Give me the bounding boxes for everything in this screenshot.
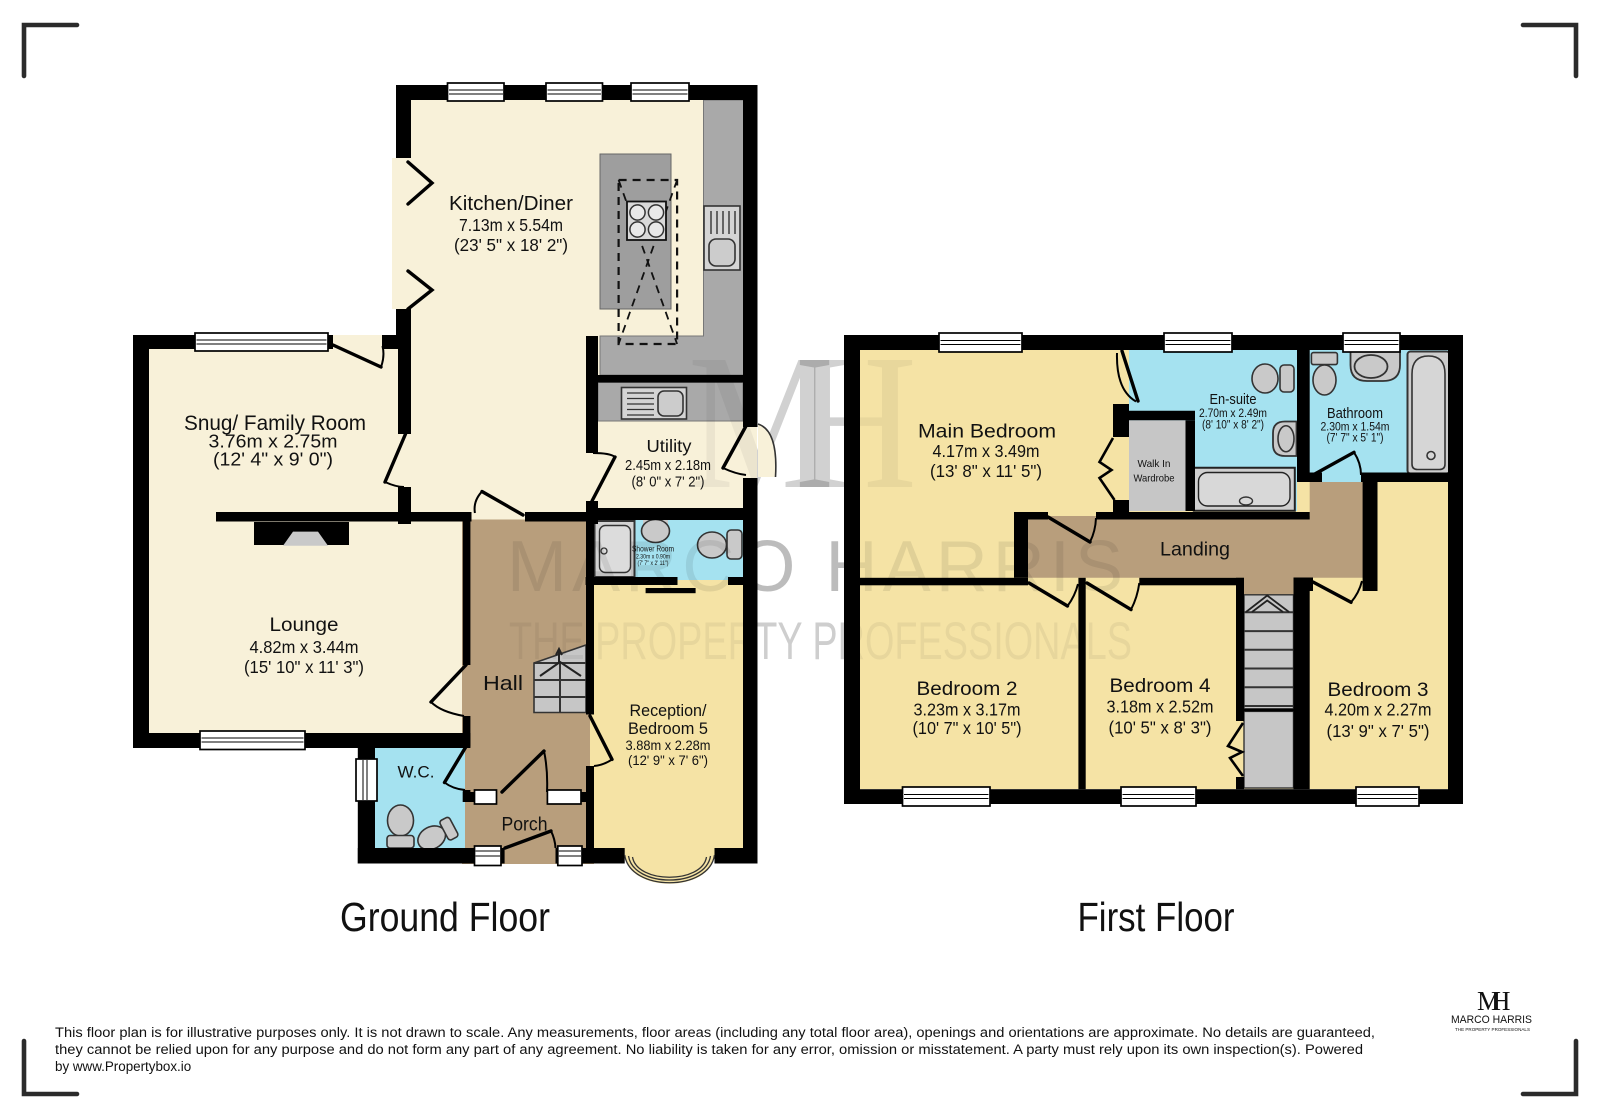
svg-text:4.17m x 3.49m: 4.17m x 3.49m [933, 441, 1040, 461]
svg-text:Wardrobe: Wardrobe [1134, 473, 1175, 485]
svg-text:(7' 7" x 2' 11"): (7' 7" x 2' 11") [638, 561, 669, 567]
svg-text:H: H [1491, 986, 1511, 1016]
svg-text:(8' 10" x 8' 2"): (8' 10" x 8' 2") [1202, 420, 1264, 432]
svg-text:3.76m x 2.75m: 3.76m x 2.75m [209, 432, 338, 452]
svg-text:4.82m x 3.44m: 4.82m x 3.44m [250, 637, 359, 657]
svg-text:This floor plan is for illustr: This floor plan is for illustrative purp… [55, 1025, 1375, 1040]
svg-text:THE PROPERTY PROFESSIONALS: THE PROPERTY PROFESSIONALS [509, 612, 1132, 671]
svg-text:(8' 0" x 7' 2"): (8' 0" x 7' 2") [632, 475, 705, 491]
svg-text:(12' 4" x 9' 0"): (12' 4" x 9' 0") [213, 450, 333, 470]
svg-text:Utility: Utility [647, 436, 692, 456]
svg-text:Bedroom 2: Bedroom 2 [917, 678, 1018, 700]
svg-text:3.23m x 3.17m: 3.23m x 3.17m [914, 700, 1021, 720]
svg-text:Ground Floor: Ground Floor [340, 894, 550, 940]
svg-text:(10' 5" x 8' 3"): (10' 5" x 8' 3") [1109, 718, 1212, 738]
svg-text:(12' 9" x 7' 6"): (12' 9" x 7' 6") [628, 752, 708, 768]
svg-text:MARCO HARRIS: MARCO HARRIS [1451, 1014, 1532, 1026]
svg-text:(15' 10" x 11' 3"): (15' 10" x 11' 3") [244, 657, 364, 677]
svg-text:W.C.: W.C. [398, 764, 435, 782]
svg-text:by www.Propertybox.io: by www.Propertybox.io [55, 1059, 191, 1074]
svg-text:3.18m x 2.52m: 3.18m x 2.52m [1107, 697, 1214, 717]
svg-text:2.70m x 2.49m: 2.70m x 2.49m [1199, 408, 1267, 420]
svg-text:(13' 8" x 11' 5"): (13' 8" x 11' 5") [930, 461, 1042, 481]
svg-text:4.20m x 2.27m: 4.20m x 2.27m [1325, 700, 1432, 720]
svg-text:En-suite: En-suite [1210, 392, 1257, 408]
svg-text:First Floor: First Floor [1078, 894, 1235, 940]
svg-text:(10' 7" x 10' 5"): (10' 7" x 10' 5") [913, 718, 1022, 738]
svg-text:Hall: Hall [483, 673, 523, 695]
svg-text:Landing: Landing [1160, 539, 1230, 561]
svg-text:Lounge: Lounge [270, 614, 339, 636]
svg-text:(13' 9" x 7' 5"): (13' 9" x 7' 5") [1327, 721, 1430, 741]
svg-text:(23' 5" x 18' 2"): (23' 5" x 18' 2") [454, 235, 568, 255]
svg-text:7.13m x 5.54m: 7.13m x 5.54m [459, 215, 563, 235]
svg-text:they cannot be relied upon for: they cannot be relied upon for any purpo… [55, 1042, 1363, 1057]
svg-text:Bathroom: Bathroom [1327, 406, 1383, 422]
svg-text:2.30m x 0.90m: 2.30m x 0.90m [636, 555, 670, 561]
svg-text:Porch: Porch [502, 815, 548, 836]
svg-text:(7' 7" x 5' 1"): (7' 7" x 5' 1") [1327, 433, 1384, 445]
svg-text:Bedroom 4: Bedroom 4 [1110, 675, 1211, 697]
svg-text:Shower Room: Shower Room [632, 545, 674, 554]
svg-text:3.88m x 2.28m: 3.88m x 2.28m [626, 737, 711, 753]
svg-text:Kitchen/Diner: Kitchen/Diner [449, 193, 573, 215]
svg-text:Walk In: Walk In [1138, 458, 1171, 470]
svg-text:Bedroom 5: Bedroom 5 [628, 719, 708, 738]
svg-text:Bedroom 3: Bedroom 3 [1328, 679, 1429, 701]
svg-text:Reception/: Reception/ [630, 701, 707, 720]
svg-text:MARCO HARRIS: MARCO HARRIS [507, 527, 1135, 607]
svg-text:THE PROPERTY PROFESSIONALS: THE PROPERTY PROFESSIONALS [1455, 1027, 1530, 1033]
svg-text:Main Bedroom: Main Bedroom [918, 421, 1056, 443]
svg-text:2.45m x 2.18m: 2.45m x 2.18m [625, 458, 711, 474]
